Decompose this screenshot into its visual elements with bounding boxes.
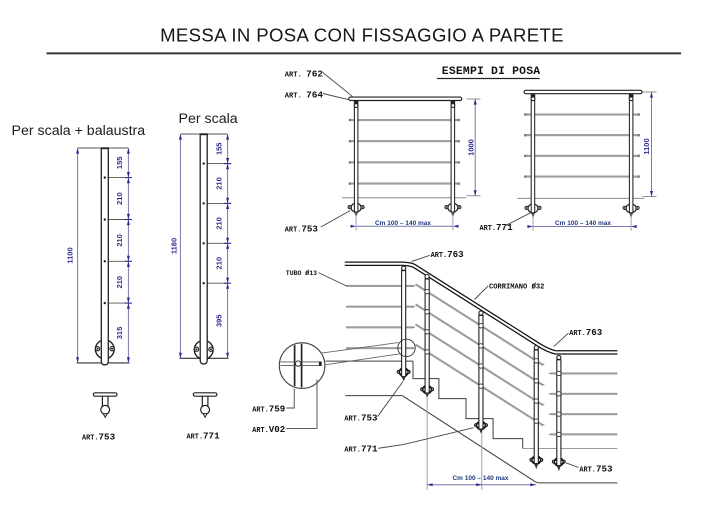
svg-text:1100: 1100 <box>642 138 651 154</box>
svg-text:1000: 1000 <box>466 139 475 156</box>
svg-text:ESEMPI DI POSA: ESEMPI DI POSA <box>442 66 541 78</box>
svg-text:155: 155 <box>214 143 223 156</box>
svg-text:1100: 1100 <box>66 247 75 263</box>
svg-text:CORRIMANO Ø32: CORRIMANO Ø32 <box>489 283 544 292</box>
svg-text:MESSA IN POSA CON FISSAGGIO A: MESSA IN POSA CON FISSAGGIO A PARETE <box>160 25 564 46</box>
svg-text:Per scala + balaustra: Per scala + balaustra <box>12 123 146 139</box>
svg-text:210: 210 <box>115 276 124 289</box>
svg-text:315: 315 <box>115 327 124 340</box>
svg-text:210: 210 <box>214 217 223 230</box>
svg-text:210: 210 <box>115 234 124 247</box>
svg-text:Cm 100 – 140 max: Cm 100 – 140 max <box>452 475 508 482</box>
svg-text:TUBO Ø13: TUBO Ø13 <box>286 269 317 277</box>
svg-text:210: 210 <box>115 192 124 205</box>
svg-text:210: 210 <box>214 177 223 190</box>
svg-text:Cm 100 – 140 max: Cm 100 – 140 max <box>375 220 431 227</box>
svg-text:210: 210 <box>214 257 223 270</box>
svg-text:1180: 1180 <box>169 238 178 254</box>
svg-text:Cm 100 – 140 max: Cm 100 – 140 max <box>555 220 611 227</box>
svg-text:Per scala: Per scala <box>179 111 238 127</box>
svg-text:155: 155 <box>115 157 124 170</box>
svg-text:395: 395 <box>214 315 223 328</box>
